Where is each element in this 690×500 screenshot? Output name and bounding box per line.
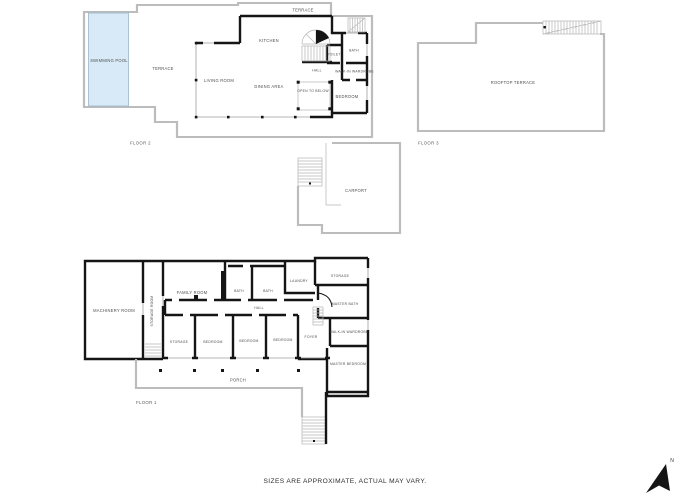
room-label-bath-2: BATH [263,289,273,293]
room-label-kitchen: KITCHEN [259,38,279,43]
lower-exterior-staircase-icon [302,417,326,444]
room-label-bath: BATH [349,49,359,53]
room-label-toilet: TOILET [327,53,340,57]
room-label-swimming-pool: SWIMMING POOL [90,58,128,63]
room-label-bedroom-3: BEDROOM [273,338,292,342]
floorplan-canvas: SWIMMING POOL TERRACE TERRACE LIVING ROO… [0,0,690,500]
floor3-plan: ROOFTOP TERRACE FLOOR 3 [418,21,604,146]
room-label-hall: HALL [312,69,321,73]
floor1-label: FLOOR 1 [136,400,157,405]
room-label-rooftop-terrace: ROOFTOP TERRACE [491,80,535,85]
exterior-staircase-icon [298,158,322,186]
room-label-bedroom: BEDROOM [336,94,359,99]
carport-section: CARPORT [298,143,400,233]
room-label-laundry: LAUNDRY [290,279,308,283]
room-label-porch: PORCH [230,378,246,383]
room-label-storage-2: STORAGE [170,340,189,344]
foyer-staircase-icon [313,307,323,325]
room-label-carport: CARPORT [345,188,367,193]
room-label-bedroom-2: BEDROOM [239,339,258,343]
room-label-open-to-below: OPEN TO BELOW [297,89,329,93]
room-label-master-bath: MASTER BATH [332,302,359,306]
rooftop-outline [418,23,604,131]
disclaimer-text: SIZES ARE APPROXIMATE, ACTUAL MAY VARY. [263,478,426,485]
floor1-outer-walls [85,258,368,396]
rooftop-staircase-icon [543,21,601,34]
skylight-icon [348,18,365,32]
room-label-machinery-room: MACHINERY ROOM [93,308,135,313]
floor2-plan: SWIMMING POOL TERRACE TERRACE LIVING ROO… [84,3,374,146]
floor2-walls [196,16,367,117]
floorplan-page: SWIMMING POOL TERRACE TERRACE LIVING ROO… [0,0,690,500]
room-label-hall: HALL [254,306,263,310]
room-label-walk-in-wardrobe-f1: WALK-IN WARDROBE [330,330,369,334]
porch-outline [136,359,368,444]
room-label-living-room: LIVING ROOM [204,78,234,83]
fireplace-icon [194,295,198,299]
floor2-label: FLOOR 2 [130,141,151,146]
room-label-terrace-top: TERRACE [292,8,313,13]
floor3-label: FLOOR 3 [418,141,439,146]
room-label-walk-in-wardrobe: WALK-IN WARDROBE [335,70,374,74]
room-label-storage: STORAGE [331,274,350,278]
room-label-bath-1: BATH [234,289,244,293]
north-arrow-icon: N [646,458,674,493]
room-label-master-bedroom: MASTER BEDROOM [330,362,366,366]
room-label-foyer: FOYER [305,335,318,339]
rooftop-outline-inner [418,23,604,131]
floor1-plan: MACHINERY ROOM STORAGE ROOM FAMILY ROOM … [85,258,369,444]
room-label-storage-room: STORAGE ROOM [150,295,154,326]
interior-staircase-icon [145,344,161,356]
carport-inner-wall [326,143,341,205]
room-label-bedroom-1: BEDROOM [203,340,222,344]
open-to-below-void [297,81,332,111]
north-label: N [670,458,674,464]
room-label-family-room: FAMILY ROOM [177,290,208,295]
room-label-dining-area: DINING AREA [254,84,283,89]
room-label-terrace: TERRACE [152,66,173,71]
